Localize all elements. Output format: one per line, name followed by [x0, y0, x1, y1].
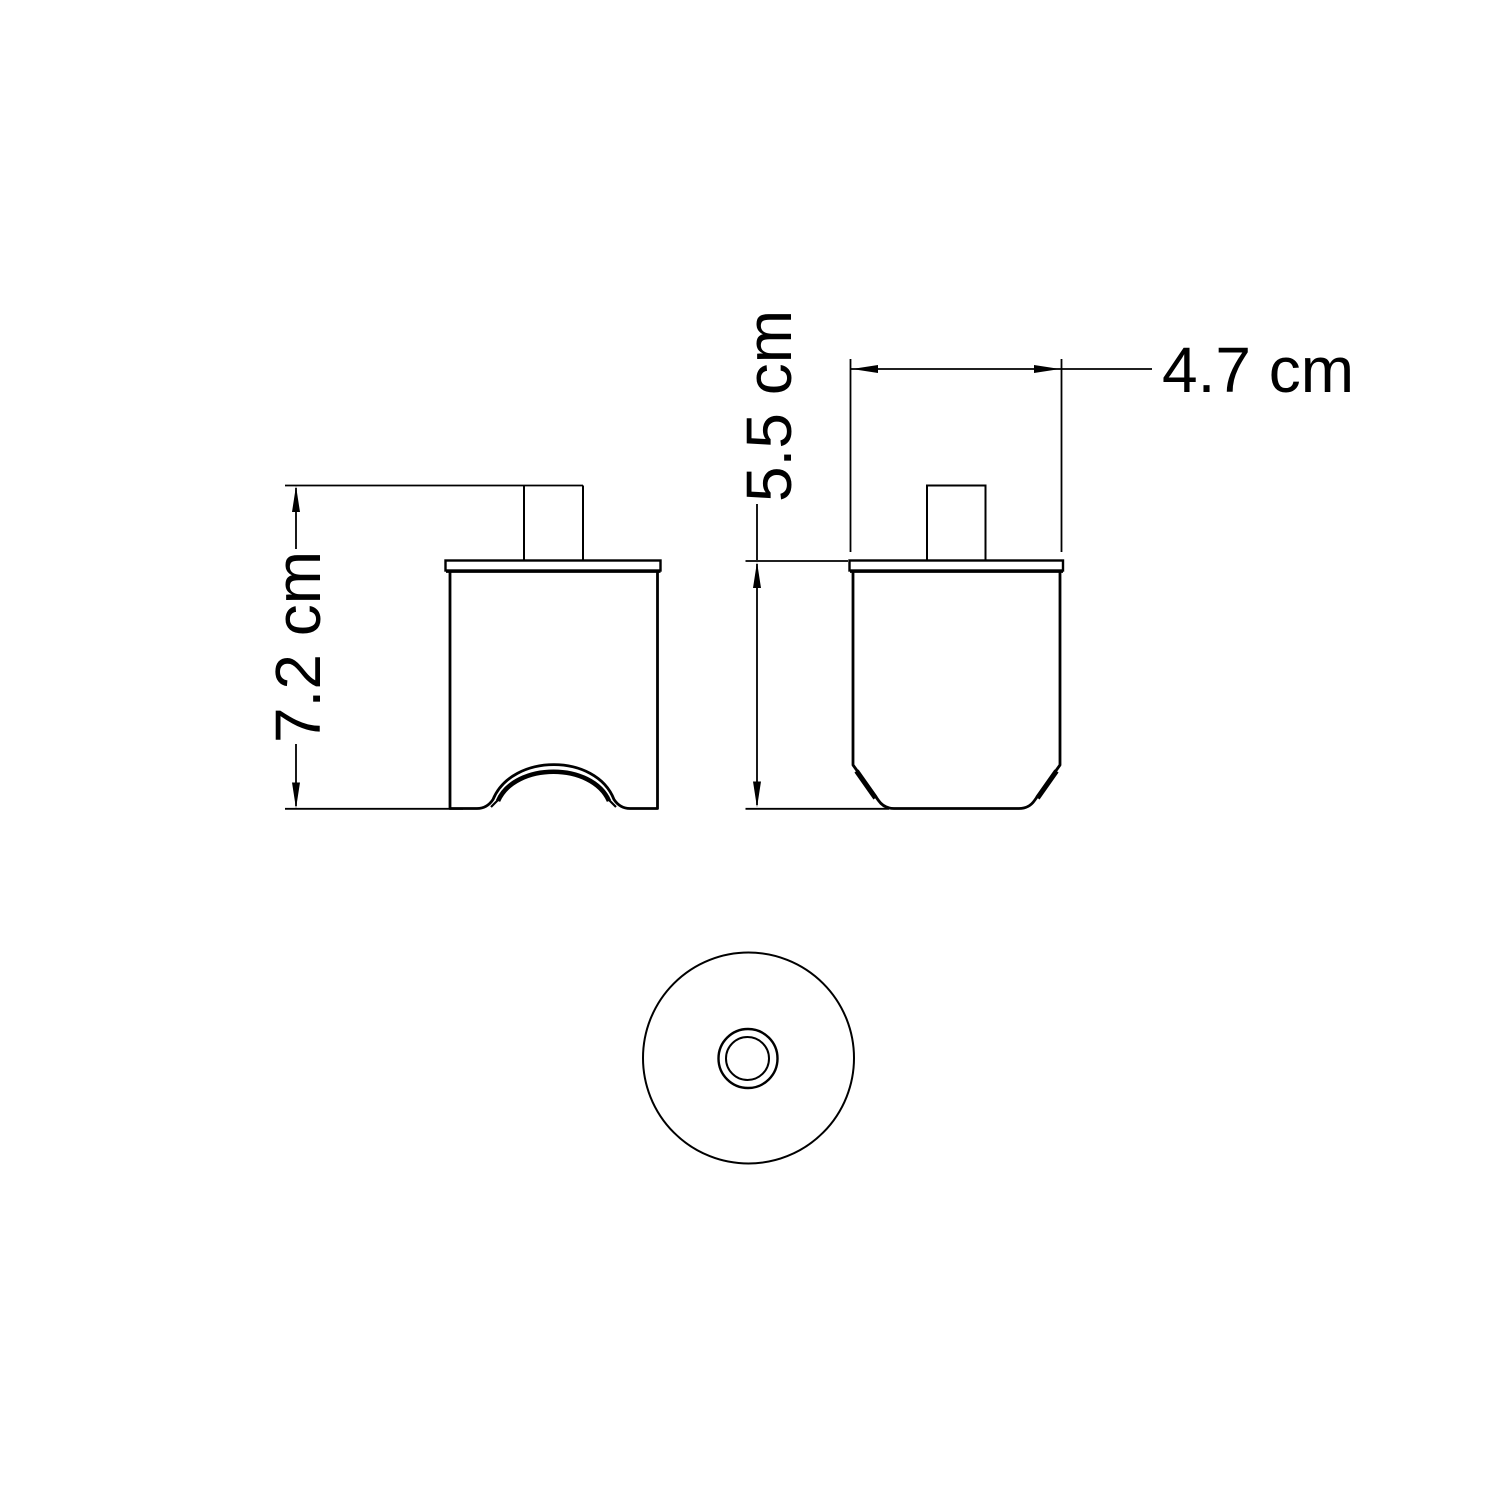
front-view-arch-end-ticks: [491, 799, 616, 807]
side-view-body-outline: [853, 572, 1060, 809]
front-view: [446, 486, 661, 809]
front-view-stem: [524, 486, 583, 561]
arrowhead-up-icon: [292, 486, 300, 512]
arrowhead-down-icon: [753, 782, 761, 808]
arrowhead-down-icon: [292, 783, 300, 809]
bottom-view-hole-inner-circle: [726, 1037, 769, 1080]
bottom-view: [643, 953, 854, 1164]
dimension-5-5-label: 5.5 cm: [733, 310, 805, 502]
front-view-cap-plate: [446, 561, 661, 571]
side-view-stem: [927, 486, 986, 561]
dimension-drawing: 7.2 cm 5.5 cm 4.7 cm: [0, 0, 1500, 1500]
side-view-chamfer-right: [1038, 771, 1057, 798]
side-view-cap-plate: [850, 561, 1064, 571]
side-view: [850, 486, 1064, 809]
arrowhead-up-icon: [753, 562, 761, 588]
dimension-7-2-label: 7.2 cm: [262, 551, 334, 743]
dimension-7-2: 7.2 cm: [262, 486, 583, 809]
bottom-view-outer-circle: [643, 953, 854, 1164]
technical-drawing-canvas: 7.2 cm 5.5 cm 4.7 cm: [0, 0, 1500, 1500]
arrowhead-right-icon: [1034, 365, 1060, 373]
dimension-4-7-label: 4.7 cm: [1162, 334, 1354, 406]
arrowhead-left-icon: [852, 365, 878, 373]
side-view-chamfer-left: [857, 771, 876, 798]
